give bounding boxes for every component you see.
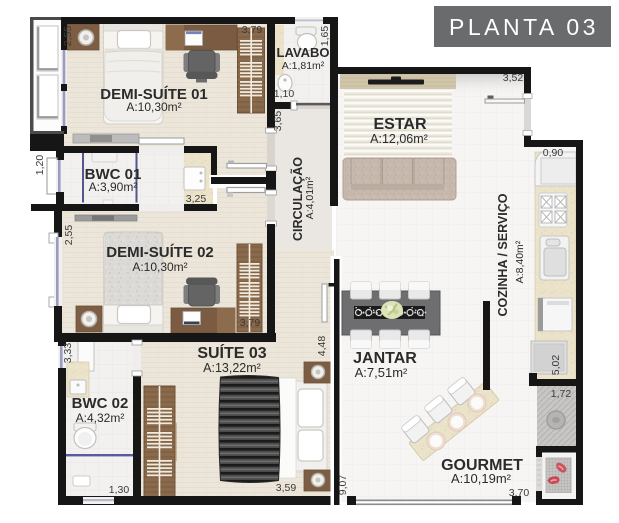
svg-text:1,10: 1,10 <box>274 88 295 100</box>
svg-text:A:4,32m²: A:4,32m² <box>76 411 125 425</box>
svg-text:PLANTA 03: PLANTA 03 <box>449 14 599 40</box>
svg-text:LAVABO: LAVABO <box>277 45 330 60</box>
svg-text:A:3,90m²: A:3,90m² <box>89 180 138 194</box>
svg-text:A:10,30m²: A:10,30m² <box>126 100 181 114</box>
svg-text:3,65: 3,65 <box>272 111 284 132</box>
svg-text:2,55: 2,55 <box>62 26 74 47</box>
svg-text:A:7,51m²: A:7,51m² <box>355 365 408 380</box>
svg-text:4,48: 4,48 <box>316 336 328 357</box>
svg-text:3,70: 3,70 <box>509 487 530 499</box>
svg-text:0,90: 0,90 <box>543 147 564 159</box>
svg-text:SUÍTE 03: SUÍTE 03 <box>197 343 266 362</box>
svg-text:9,07: 9,07 <box>337 475 349 496</box>
svg-text:1,30: 1,30 <box>109 484 130 496</box>
svg-text:A:13,22m²: A:13,22m² <box>203 361 261 375</box>
svg-text:ESTAR: ESTAR <box>373 116 426 133</box>
svg-text:A:10,19m²: A:10,19m² <box>451 471 512 486</box>
svg-text:A:10,30m²: A:10,30m² <box>132 260 187 274</box>
svg-text:A:8,40m²: A:8,40m² <box>514 240 526 283</box>
svg-text:3,79: 3,79 <box>242 24 263 36</box>
svg-text:5,02: 5,02 <box>550 355 562 376</box>
svg-text:1,20: 1,20 <box>34 155 46 176</box>
svg-text:3,59: 3,59 <box>276 482 297 494</box>
svg-text:3,79: 3,79 <box>240 317 261 329</box>
svg-text:1,65: 1,65 <box>319 26 331 47</box>
svg-text:A:4,01m²: A:4,01m² <box>304 176 316 219</box>
svg-text:1,72: 1,72 <box>551 388 572 400</box>
svg-text:3,33: 3,33 <box>62 343 74 364</box>
svg-text:CIRCULAÇÃO: CIRCULAÇÃO <box>290 157 305 241</box>
svg-text:BWC 02: BWC 02 <box>72 395 129 412</box>
svg-text:A:12,06m²: A:12,06m² <box>370 132 428 146</box>
svg-text:DEMI-SUÍTE 02: DEMI-SUÍTE 02 <box>106 244 214 261</box>
svg-text:3,25: 3,25 <box>186 193 207 205</box>
svg-text:3,52: 3,52 <box>503 72 524 84</box>
svg-text:2,55: 2,55 <box>63 225 75 246</box>
svg-text:COZINHA / SERVIÇO: COZINHA / SERVIÇO <box>496 193 510 316</box>
svg-text:A:1,81m²: A:1,81m² <box>282 60 325 72</box>
